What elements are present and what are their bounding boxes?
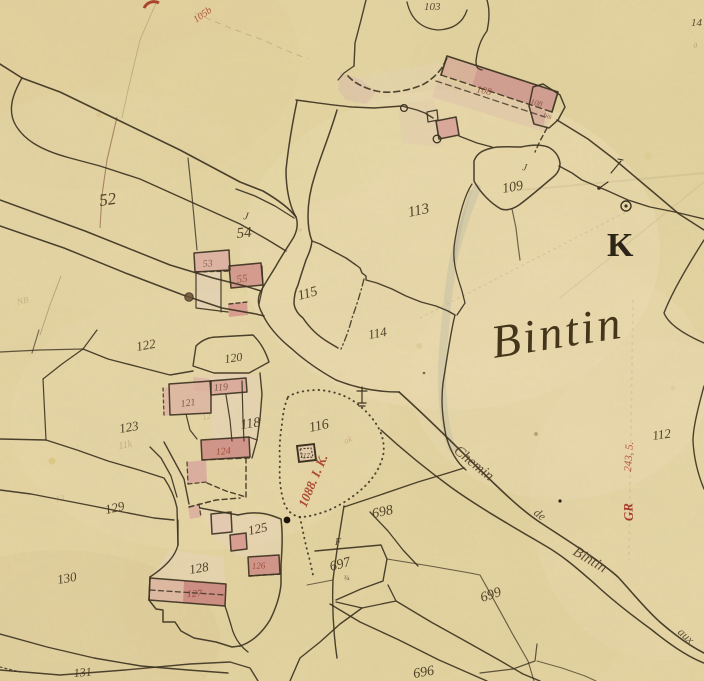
svg-text:119: 119	[213, 382, 228, 394]
svg-text:126: 126	[252, 560, 267, 571]
svg-text:117: 117	[300, 452, 310, 460]
svg-text:103: 103	[424, 1, 441, 13]
svg-text:53: 53	[202, 258, 213, 270]
svg-text:124: 124	[215, 446, 231, 458]
svg-text:54: 54	[236, 225, 253, 242]
svg-text:243, 5.: 243, 5.	[622, 441, 636, 472]
svg-text:696: 696	[412, 664, 435, 681]
svg-text:120: 120	[223, 350, 243, 366]
svg-text:55: 55	[236, 272, 249, 285]
svg-text:131: 131	[73, 664, 92, 680]
svg-text:121: 121	[180, 397, 196, 410]
svg-text:F: F	[334, 537, 342, 548]
svg-text:GR: GR	[620, 503, 636, 522]
svg-text:52: 52	[98, 189, 118, 210]
svg-text:14: 14	[691, 17, 703, 29]
svg-text:127: 127	[187, 588, 204, 600]
svg-text:118: 118	[239, 415, 261, 433]
svg-text:12: 12	[202, 412, 211, 422]
svg-text:112: 112	[651, 425, 672, 443]
svg-text:K: K	[607, 227, 634, 264]
